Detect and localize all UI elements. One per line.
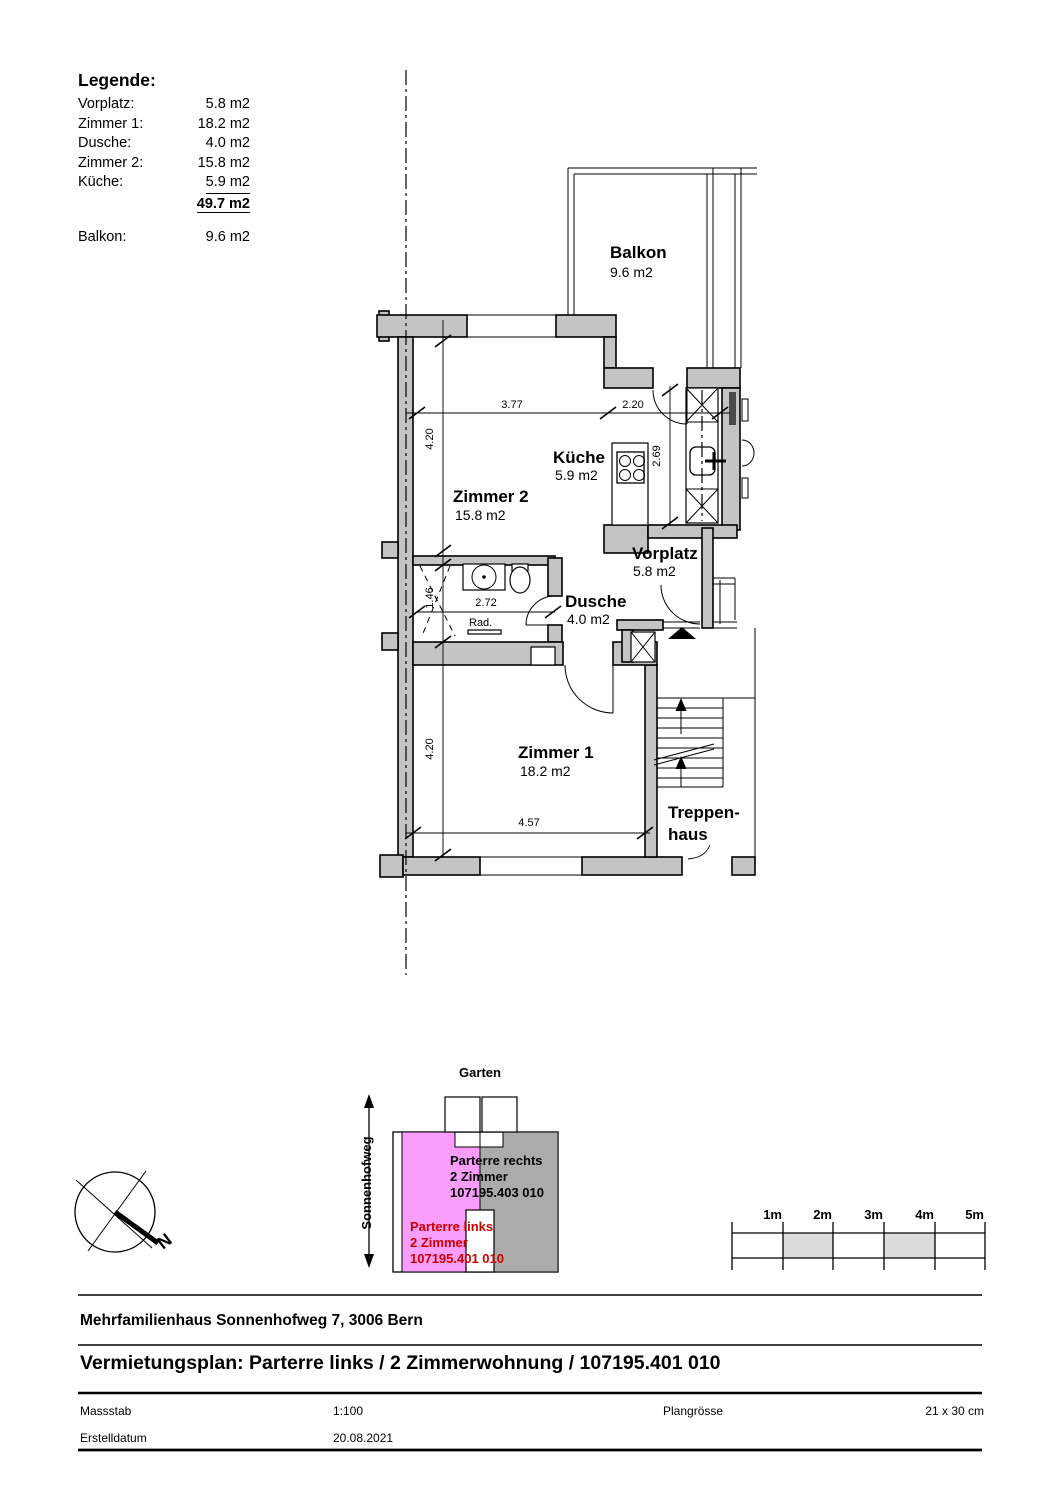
stair-break-line [654, 744, 714, 765]
kitchen-shaft-column [686, 388, 726, 523]
north-compass-icon: N [75, 1171, 176, 1253]
floor-plan: Balkon 9.6 m2 Zimmer 2 15.8 m2 Küche 5.9… [377, 70, 757, 975]
scale-label-4m: 4m [915, 1207, 934, 1222]
neighbor-fixtures [742, 399, 754, 498]
entrance-shaft [631, 632, 655, 662]
stairwell-label-line2: haus [668, 825, 708, 844]
legend-row-value: 4.0 m2 [206, 134, 250, 154]
plan-title: Vermietungsplan: Parterre links / 2 Zimm… [80, 1352, 721, 1375]
dim-dusche-width: 2.72 [475, 597, 496, 609]
legend-row: Zimmer 1: 18.2 m2 [78, 115, 250, 135]
dim-kueche-width: 2.20 [622, 399, 643, 411]
svg-text:2 Zimmer: 2 Zimmer [410, 1235, 468, 1250]
toilet-icon [510, 567, 530, 593]
room-area-vorplatz: 5.8 m2 [633, 563, 676, 579]
building-title: Mehrfamilienhaus Sonnenhofweg 7, 3006 Be… [80, 1312, 423, 1330]
room-label-zimmer2: Zimmer 2 [453, 487, 529, 506]
zimmer1-door [565, 665, 613, 713]
legend-row-label: Zimmer 1: [78, 115, 143, 135]
meta-scale-label: Massstab [80, 1404, 131, 1418]
dim-dusche-depth: 1.46 [424, 587, 436, 608]
meta-size-value: 21 x 30 cm [925, 1404, 984, 1418]
legend-row: Vorplatz: 5.8 m2 [78, 95, 250, 115]
room-label-kueche: Küche [553, 448, 605, 467]
room-area-balkon: 9.6 m2 [610, 264, 653, 280]
legend-total-value: 49.7 m2 [197, 196, 250, 213]
legend-row-value: 15.8 m2 [198, 154, 250, 174]
legend-total-row: 49.7 m2 [78, 195, 250, 215]
legend-balcony-value: 9.6 m2 [206, 228, 250, 248]
scale-label-5m: 5m [965, 1207, 984, 1222]
legend-row-label: Dusche: [78, 134, 131, 154]
legend-row-value: 5.9 m2 [206, 173, 250, 194]
legend-row: Küche: 5.9 m2 [78, 173, 250, 194]
legend-balcony-row: Balkon: 9.6 m2 [78, 228, 250, 248]
svg-text:Parterre rechts: Parterre rechts [450, 1153, 543, 1168]
dim-zimmer1-depth: 4.20 [424, 738, 436, 759]
stairwell-leader-line [688, 845, 710, 859]
north-label: N [153, 1229, 176, 1253]
kitchen-counter [612, 443, 648, 525]
legend-row-value: 18.2 m2 [198, 115, 250, 135]
room-area-dusche: 4.0 m2 [567, 611, 610, 627]
svg-text:107195.403 010: 107195.403 010 [450, 1185, 544, 1200]
scale-label-2m: 2m [813, 1207, 832, 1222]
legend-row-label: Vorplatz: [78, 95, 134, 115]
dim-kueche-depth: 2.69 [651, 445, 663, 466]
room-area-zimmer2: 15.8 m2 [455, 507, 506, 523]
garden-label: Garten [459, 1065, 501, 1080]
room-label-zimmer1: Zimmer 1 [518, 743, 594, 762]
dim-zimmer2-depth: 4.20 [424, 428, 436, 449]
legend-title: Legende: [78, 70, 250, 90]
legend: Legende: Vorplatz: 5.8 m2 Zimmer 1: 18.2… [78, 70, 250, 247]
svg-text:107195.401 010: 107195.401 010 [410, 1251, 504, 1266]
dim-zimmer1-width: 4.57 [518, 817, 539, 829]
site-balcony-left [445, 1097, 480, 1132]
svg-text:Parterre links: Parterre links [410, 1219, 493, 1234]
legend-row-label: Zimmer 2: [78, 154, 143, 174]
room-area-kueche: 5.9 m2 [555, 467, 598, 483]
scale-label-1m: 1m [763, 1207, 782, 1222]
meta-date-value: 20.08.2021 [333, 1431, 393, 1445]
legend-row: Zimmer 2: 15.8 m2 [78, 154, 250, 174]
plan-page: Balkon 9.6 m2 Zimmer 2 15.8 m2 Küche 5.9… [0, 0, 1060, 1500]
street-label: Sonnenhofweg [359, 1136, 374, 1229]
site-plan: Garten Sonnenhofweg Parterre rechts 2 Zi… [359, 1065, 558, 1272]
room-label-dusche: Dusche [565, 592, 626, 611]
meta-scale-value: 1:100 [333, 1404, 363, 1418]
scale-label-3m: 3m [864, 1207, 883, 1222]
legend-row-value: 5.8 m2 [206, 95, 250, 115]
entrance-marker-icon [668, 627, 696, 639]
legend-balcony-label: Balkon: [78, 228, 126, 248]
stair-up-arrow-icon [676, 698, 687, 711]
wall-niche [531, 647, 555, 665]
scale-bar: 1m 2m 3m 4m 5m [732, 1207, 985, 1270]
stairwell-label-line1: Treppen- [668, 803, 740, 822]
legend-row-label: Küche: [78, 173, 123, 194]
svg-text:2 Zimmer: 2 Zimmer [450, 1169, 508, 1184]
room-label-balkon: Balkon [610, 243, 667, 262]
shower-room-door [526, 596, 555, 625]
site-balcony-right [482, 1097, 517, 1132]
dim-zimmer2-width: 3.77 [501, 399, 522, 411]
room-label-vorplatz: Vorplatz [632, 544, 698, 563]
meta-size-label: Plangrösse [663, 1404, 723, 1418]
radiator-icon [468, 630, 501, 634]
legend-row: Dusche: 4.0 m2 [78, 134, 250, 154]
balcony-railing [568, 168, 757, 368]
meta-date-label: Erstelldatum [80, 1431, 147, 1445]
room-area-zimmer1: 18.2 m2 [520, 763, 571, 779]
radiator-label: Rad. [469, 617, 492, 629]
